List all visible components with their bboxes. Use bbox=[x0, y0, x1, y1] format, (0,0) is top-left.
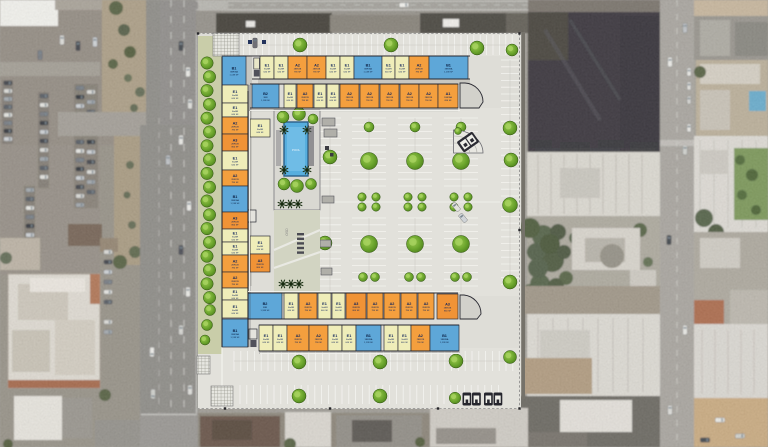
svg-text:E1: E1 bbox=[386, 64, 391, 68]
svg-text:E1: E1 bbox=[347, 334, 352, 338]
svg-text:640 SF: 640 SF bbox=[276, 342, 284, 344]
svg-text:StuBR: StuBR bbox=[287, 96, 294, 99]
svg-text:StuBR: StuBR bbox=[232, 161, 239, 164]
svg-text:640 SF: 640 SF bbox=[231, 239, 239, 241]
svg-text:E1: E1 bbox=[402, 334, 407, 338]
svg-text:StuBR: StuBR bbox=[332, 338, 339, 341]
svg-text:790 SF: 790 SF bbox=[304, 310, 312, 312]
svg-text:3BR/BA: 3BR/BA bbox=[441, 338, 449, 341]
svg-text:E1: E1 bbox=[333, 334, 338, 338]
svg-text:StuBR: StuBR bbox=[385, 68, 392, 71]
svg-text:A2: A2 bbox=[306, 302, 311, 306]
svg-text:790 SF: 790 SF bbox=[231, 267, 239, 269]
svg-text:640 SF: 640 SF bbox=[256, 132, 264, 134]
svg-text:1,138 SF: 1,138 SF bbox=[364, 342, 374, 344]
svg-text:StuBR: StuBR bbox=[330, 96, 337, 99]
svg-text:1,138 SF: 1,138 SF bbox=[230, 74, 240, 76]
svg-text:A3: A3 bbox=[233, 217, 238, 221]
svg-text:E1: E1 bbox=[233, 305, 238, 309]
svg-text:1,138 SF: 1,138 SF bbox=[440, 342, 450, 344]
svg-text:1,188 SF: 1,188 SF bbox=[261, 310, 271, 312]
svg-text:A2: A2 bbox=[233, 122, 238, 126]
svg-text:1,138 SF: 1,138 SF bbox=[231, 203, 241, 205]
svg-text:E1: E1 bbox=[389, 334, 394, 338]
svg-text:860 SF: 860 SF bbox=[256, 267, 264, 269]
svg-text:A2: A2 bbox=[347, 92, 352, 96]
svg-text:A2: A2 bbox=[314, 64, 319, 68]
svg-text:790 SF: 790 SF bbox=[417, 342, 425, 344]
svg-text:StuBR: StuBR bbox=[232, 110, 239, 113]
svg-text:E1: E1 bbox=[258, 241, 263, 245]
svg-text:A2: A2 bbox=[426, 92, 431, 96]
svg-text:1,188 SF: 1,188 SF bbox=[261, 100, 271, 102]
svg-text:E1: E1 bbox=[233, 90, 238, 94]
svg-text:A2: A2 bbox=[417, 64, 422, 68]
svg-text:790 SF: 790 SF bbox=[231, 129, 239, 131]
svg-text:640 SF: 640 SF bbox=[287, 310, 295, 312]
svg-text:640 SF: 640 SF bbox=[231, 164, 239, 166]
svg-text:640 SF: 640 SF bbox=[329, 100, 337, 102]
svg-text:3BR/BA: 3BR/BA bbox=[364, 68, 372, 71]
svg-text:790 SF: 790 SF bbox=[346, 100, 354, 102]
svg-text:A2: A2 bbox=[367, 92, 372, 96]
svg-text:A3: A3 bbox=[233, 139, 238, 143]
svg-text:640 SF: 640 SF bbox=[256, 249, 264, 251]
svg-text:790 SF: 790 SF bbox=[371, 310, 379, 312]
svg-text:3BR/BA: 3BR/BA bbox=[230, 71, 238, 74]
svg-text:790 SF: 790 SF bbox=[313, 71, 321, 73]
svg-text:A1: A1 bbox=[446, 92, 451, 96]
svg-text:StuBR: StuBR bbox=[344, 68, 351, 71]
svg-text:StuBR: StuBR bbox=[232, 249, 239, 252]
svg-text:StuBR: StuBR bbox=[388, 338, 395, 341]
svg-text:B1: B1 bbox=[233, 195, 238, 199]
svg-text:1,138 SF: 1,138 SF bbox=[444, 71, 454, 73]
svg-text:StuBR: StuBR bbox=[317, 96, 324, 99]
svg-text:640 SF: 640 SF bbox=[343, 71, 351, 73]
svg-text:860 SF: 860 SF bbox=[444, 310, 452, 312]
svg-text:790 SF: 790 SF bbox=[366, 100, 374, 102]
svg-text:640 SF: 640 SF bbox=[231, 298, 239, 300]
svg-text:StuBR: StuBR bbox=[330, 68, 337, 71]
svg-text:790 SF: 790 SF bbox=[406, 100, 414, 102]
svg-text:640 SF: 640 SF bbox=[387, 342, 395, 344]
svg-text:A3: A3 bbox=[258, 259, 263, 263]
svg-text:3BR/BA: 3BR/BA bbox=[231, 333, 239, 336]
svg-text:A2: A2 bbox=[233, 276, 238, 280]
svg-text:StuBR: StuBR bbox=[277, 338, 284, 341]
svg-text:E1: E1 bbox=[233, 245, 238, 249]
svg-text:790 SF: 790 SF bbox=[388, 310, 396, 312]
svg-text:B1: B1 bbox=[233, 329, 238, 333]
svg-text:640 SF: 640 SF bbox=[401, 342, 409, 344]
svg-text:640 SF: 640 SF bbox=[316, 100, 324, 102]
svg-text:StuBR: StuBR bbox=[321, 306, 328, 309]
svg-text:A3: A3 bbox=[445, 303, 450, 307]
svg-text:B2: B2 bbox=[263, 302, 268, 306]
svg-text:E1: E1 bbox=[322, 302, 327, 306]
svg-text:StuBR: StuBR bbox=[257, 245, 264, 248]
svg-text:E1: E1 bbox=[233, 106, 238, 110]
svg-text:A2: A2 bbox=[303, 92, 308, 96]
svg-text:A2: A2 bbox=[424, 302, 429, 306]
svg-text:StuBR: StuBR bbox=[232, 294, 239, 297]
svg-text:A2: A2 bbox=[296, 334, 301, 338]
svg-text:E1: E1 bbox=[336, 302, 341, 306]
svg-text:3BR/BA: 3BR/BA bbox=[365, 338, 373, 341]
svg-text:640 SF: 640 SF bbox=[345, 342, 353, 344]
svg-text:B1: B1 bbox=[446, 64, 451, 68]
svg-text:StuBR: StuBR bbox=[399, 68, 406, 71]
svg-text:790 SF: 790 SF bbox=[386, 100, 394, 102]
svg-text:StuBR: StuBR bbox=[232, 94, 239, 97]
svg-text:640 SF: 640 SF bbox=[335, 310, 343, 312]
svg-text:E1: E1 bbox=[233, 290, 238, 294]
svg-text:790 SF: 790 SF bbox=[294, 71, 302, 73]
svg-text:StuBR: StuBR bbox=[232, 309, 239, 312]
svg-text:StuBR: StuBR bbox=[401, 338, 408, 341]
svg-text:StuBR: StuBR bbox=[278, 68, 285, 71]
svg-text:790 SF: 790 SF bbox=[425, 100, 433, 102]
svg-text:B1: B1 bbox=[366, 334, 371, 338]
svg-text:640 SF: 640 SF bbox=[331, 342, 339, 344]
svg-text:790 SF: 790 SF bbox=[405, 310, 413, 312]
svg-text:OSD: OSD bbox=[285, 228, 289, 236]
svg-text:E1: E1 bbox=[318, 92, 323, 96]
svg-text:E1: E1 bbox=[345, 64, 350, 68]
svg-text:E1: E1 bbox=[258, 124, 263, 128]
svg-text:640 SF: 640 SF bbox=[231, 252, 239, 254]
svg-text:A2: A2 bbox=[373, 302, 378, 306]
svg-text:E1: E1 bbox=[264, 334, 269, 338]
svg-text:A2: A2 bbox=[387, 92, 392, 96]
svg-text:StuBR: StuBR bbox=[263, 338, 270, 341]
svg-text:E1: E1 bbox=[278, 334, 283, 338]
svg-text:StuBR: StuBR bbox=[346, 338, 353, 341]
svg-text:696 SF: 696 SF bbox=[444, 100, 452, 102]
svg-text:E1: E1 bbox=[279, 64, 284, 68]
svg-text:790 SF: 790 SF bbox=[301, 100, 309, 102]
svg-text:StuBR: StuBR bbox=[257, 128, 264, 131]
svg-text:A3: A3 bbox=[354, 302, 359, 306]
svg-text:StuBR: StuBR bbox=[288, 306, 295, 309]
svg-text:790 SF: 790 SF bbox=[415, 71, 423, 73]
svg-text:1,138 SF: 1,138 SF bbox=[364, 71, 374, 73]
svg-text:A2: A2 bbox=[390, 302, 395, 306]
svg-text:640 SF: 640 SF bbox=[385, 71, 393, 73]
svg-text:B1: B1 bbox=[232, 67, 237, 71]
svg-text:640 SF: 640 SF bbox=[398, 71, 406, 73]
svg-text:790 SF: 790 SF bbox=[231, 182, 239, 184]
svg-text:640 SF: 640 SF bbox=[263, 71, 271, 73]
svg-text:A2: A2 bbox=[407, 92, 412, 96]
svg-text:A2: A2 bbox=[407, 302, 412, 306]
svg-text:B2: B2 bbox=[263, 92, 268, 96]
svg-text:790 SF: 790 SF bbox=[422, 310, 430, 312]
svg-text:E1: E1 bbox=[331, 92, 336, 96]
svg-text:640 SF: 640 SF bbox=[231, 98, 239, 100]
svg-text:E1: E1 bbox=[233, 232, 238, 236]
svg-text:E1: E1 bbox=[331, 64, 336, 68]
svg-text:A2: A2 bbox=[418, 334, 423, 338]
svg-text:StuBR: StuBR bbox=[232, 236, 239, 239]
svg-text:640 SF: 640 SF bbox=[231, 313, 239, 315]
svg-text:640 SF: 640 SF bbox=[231, 114, 239, 116]
svg-text:A2: A2 bbox=[233, 174, 238, 178]
svg-text:860 SF: 860 SF bbox=[231, 224, 239, 226]
svg-text:860 SF: 860 SF bbox=[352, 310, 360, 312]
svg-text:E1: E1 bbox=[400, 64, 405, 68]
svg-text:790 SF: 790 SF bbox=[315, 342, 323, 344]
svg-text:1,138 SF: 1,138 SF bbox=[231, 337, 241, 339]
svg-text:640 SF: 640 SF bbox=[277, 71, 285, 73]
svg-text:640 SF: 640 SF bbox=[286, 100, 294, 102]
svg-text:A2: A2 bbox=[316, 334, 321, 338]
svg-text:A2: A2 bbox=[233, 260, 238, 264]
svg-text:B1: B1 bbox=[366, 64, 371, 68]
svg-text:790 SF: 790 SF bbox=[294, 342, 302, 344]
svg-text:E1: E1 bbox=[288, 92, 293, 96]
svg-text:790 SF: 790 SF bbox=[231, 284, 239, 286]
svg-text:B1: B1 bbox=[442, 334, 447, 338]
svg-text:3BR/BA: 3BR/BA bbox=[445, 68, 453, 71]
svg-text:640 SF: 640 SF bbox=[262, 342, 270, 344]
svg-text:E1: E1 bbox=[265, 64, 270, 68]
svg-text:StuBR: StuBR bbox=[264, 68, 271, 71]
svg-text:A2: A2 bbox=[295, 64, 300, 68]
svg-text:860 SF: 860 SF bbox=[231, 146, 239, 148]
svg-text:StuBR: StuBR bbox=[335, 306, 342, 309]
svg-text:3BR/BA: 3BR/BA bbox=[231, 199, 239, 202]
svg-text:POOL: POOL bbox=[292, 148, 301, 152]
svg-text:640 SF: 640 SF bbox=[329, 71, 337, 73]
svg-text:E1: E1 bbox=[289, 302, 294, 306]
svg-text:E1: E1 bbox=[233, 157, 238, 161]
svg-text:1BR/BA: 1BR/BA bbox=[444, 96, 452, 99]
svg-text:640 SF: 640 SF bbox=[321, 310, 329, 312]
